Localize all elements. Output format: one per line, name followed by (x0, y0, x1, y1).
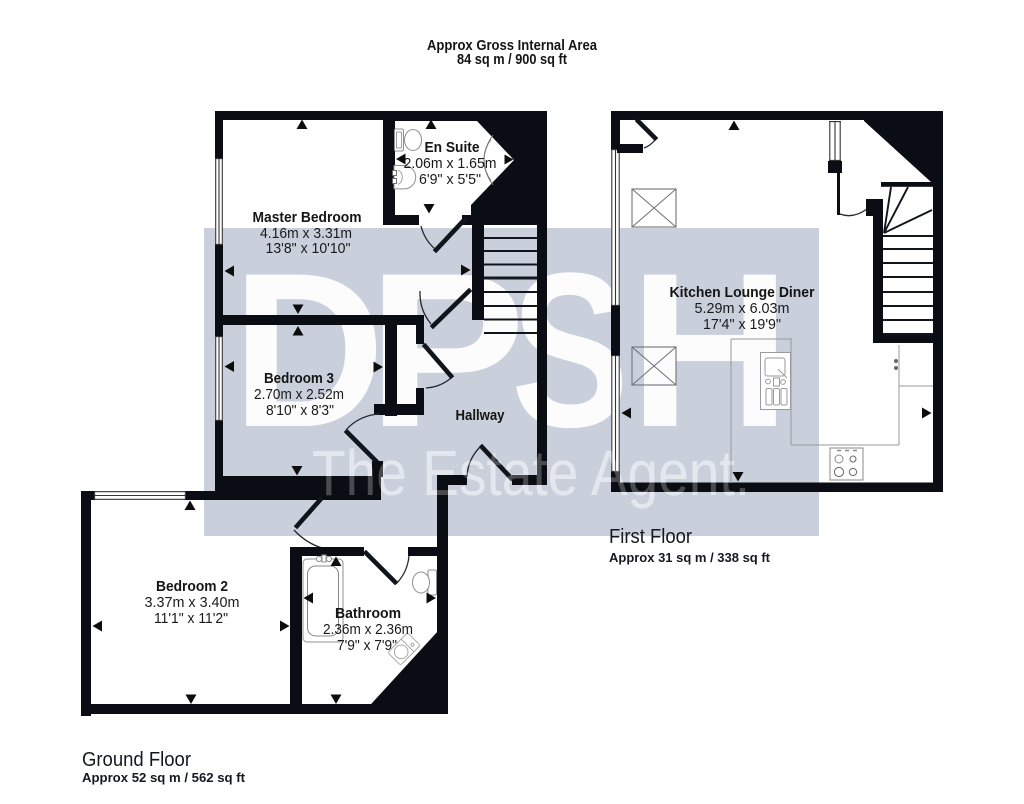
svg-text:7'9" x 7'9": 7'9" x 7'9" (337, 637, 397, 654)
svg-text:2.36m x 2.36m: 2.36m x 2.36m (323, 621, 413, 638)
svg-text:2.70m x 2.52m: 2.70m x 2.52m (254, 386, 344, 403)
svg-text:Approx 31 sq m / 338 sq ft: Approx 31 sq m / 338 sq ft (609, 550, 771, 565)
svg-text:8'10" x 8'3": 8'10" x 8'3" (266, 402, 334, 419)
svg-text:First Floor: First Floor (609, 525, 692, 548)
svg-text:3.37m x 3.40m: 3.37m x 3.40m (145, 594, 240, 611)
svg-text:11'1" x 11'2": 11'1" x 11'2" (154, 610, 228, 627)
svg-text:Bedroom 2: Bedroom 2 (156, 578, 228, 595)
svg-text:En Suite: En Suite (425, 139, 480, 156)
svg-text:The Estate Agent.: The Estate Agent. (312, 437, 750, 509)
svg-text:Bedroom 3: Bedroom 3 (264, 370, 334, 387)
svg-text:17'4" x 19'9": 17'4" x 19'9" (703, 316, 781, 333)
svg-text:Bathroom: Bathroom (335, 605, 401, 622)
svg-text:2.06m x 1.65m: 2.06m x 1.65m (404, 155, 497, 172)
svg-text:84 sq m / 900 sq ft: 84 sq m / 900 sq ft (457, 51, 567, 68)
svg-text:Hallway: Hallway (456, 407, 506, 424)
svg-text:Master Bedroom: Master Bedroom (253, 209, 362, 226)
svg-text:13'8" x 10'10": 13'8" x 10'10" (266, 240, 351, 257)
svg-text:Kitchen Lounge Diner: Kitchen Lounge Diner (670, 284, 815, 301)
svg-text:6'9" x 5'5": 6'9" x 5'5" (419, 171, 481, 188)
svg-text:5.29m x 6.03m: 5.29m x 6.03m (695, 300, 790, 317)
svg-text:Ground Floor: Ground Floor (82, 748, 191, 771)
svg-text:Approx 52 sq m / 562 sq ft: Approx 52 sq m / 562 sq ft (82, 770, 246, 785)
